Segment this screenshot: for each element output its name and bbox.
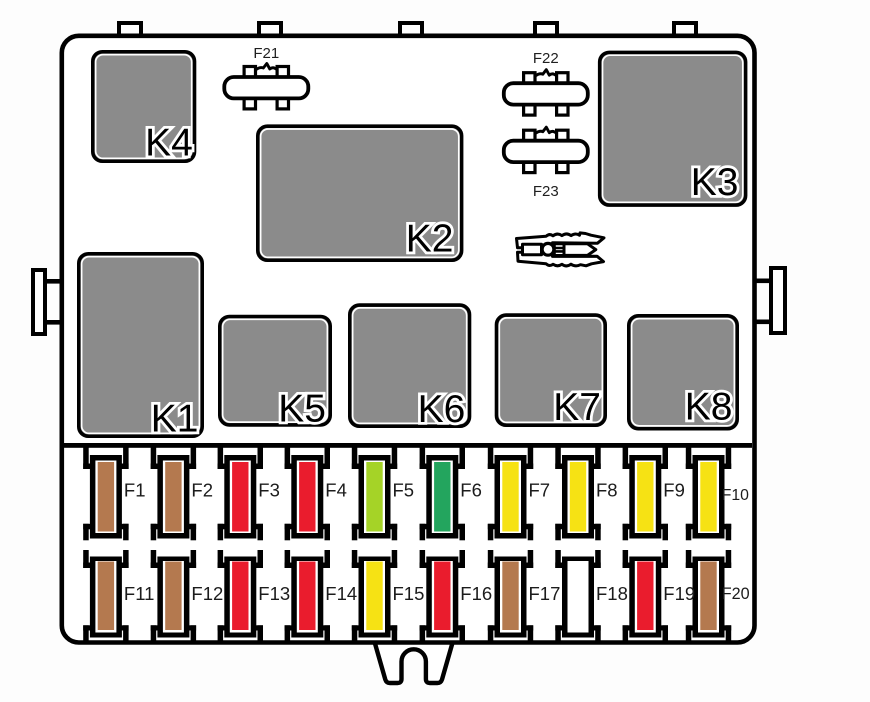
svg-text:F6: F6 bbox=[460, 480, 482, 501]
svg-text:K7: K7 bbox=[553, 386, 601, 429]
svg-text:K3: K3 bbox=[691, 161, 739, 204]
svg-text:F5: F5 bbox=[393, 480, 415, 501]
svg-text:F8: F8 bbox=[596, 480, 618, 501]
svg-text:F20: F20 bbox=[722, 585, 750, 603]
svg-text:F3: F3 bbox=[258, 480, 280, 501]
svg-text:F10: F10 bbox=[722, 487, 749, 504]
svg-text:F18: F18 bbox=[596, 583, 628, 604]
svg-text:F13: F13 bbox=[258, 583, 290, 604]
svg-text:F7: F7 bbox=[529, 480, 551, 501]
svg-text:F14: F14 bbox=[325, 583, 357, 604]
svg-text:F9: F9 bbox=[663, 480, 685, 501]
svg-text:F17: F17 bbox=[529, 583, 561, 604]
svg-text:K4: K4 bbox=[145, 122, 193, 165]
svg-text:K6: K6 bbox=[418, 388, 466, 431]
svg-text:F21: F21 bbox=[253, 45, 279, 62]
svg-text:K2: K2 bbox=[406, 218, 454, 261]
svg-text:F1: F1 bbox=[124, 480, 146, 501]
svg-text:F22: F22 bbox=[533, 50, 559, 67]
svg-text:K8: K8 bbox=[685, 386, 733, 429]
svg-text:F15: F15 bbox=[393, 583, 425, 604]
svg-text:F4: F4 bbox=[325, 480, 347, 501]
svg-text:F19: F19 bbox=[663, 583, 695, 604]
svg-text:K5: K5 bbox=[278, 387, 326, 430]
svg-text:F23: F23 bbox=[533, 183, 559, 200]
svg-text:K1: K1 bbox=[151, 398, 199, 441]
svg-text:F2: F2 bbox=[191, 480, 213, 501]
svg-text:F11: F11 bbox=[124, 583, 155, 604]
svg-text:F16: F16 bbox=[460, 583, 492, 604]
svg-text:F12: F12 bbox=[191, 583, 223, 604]
